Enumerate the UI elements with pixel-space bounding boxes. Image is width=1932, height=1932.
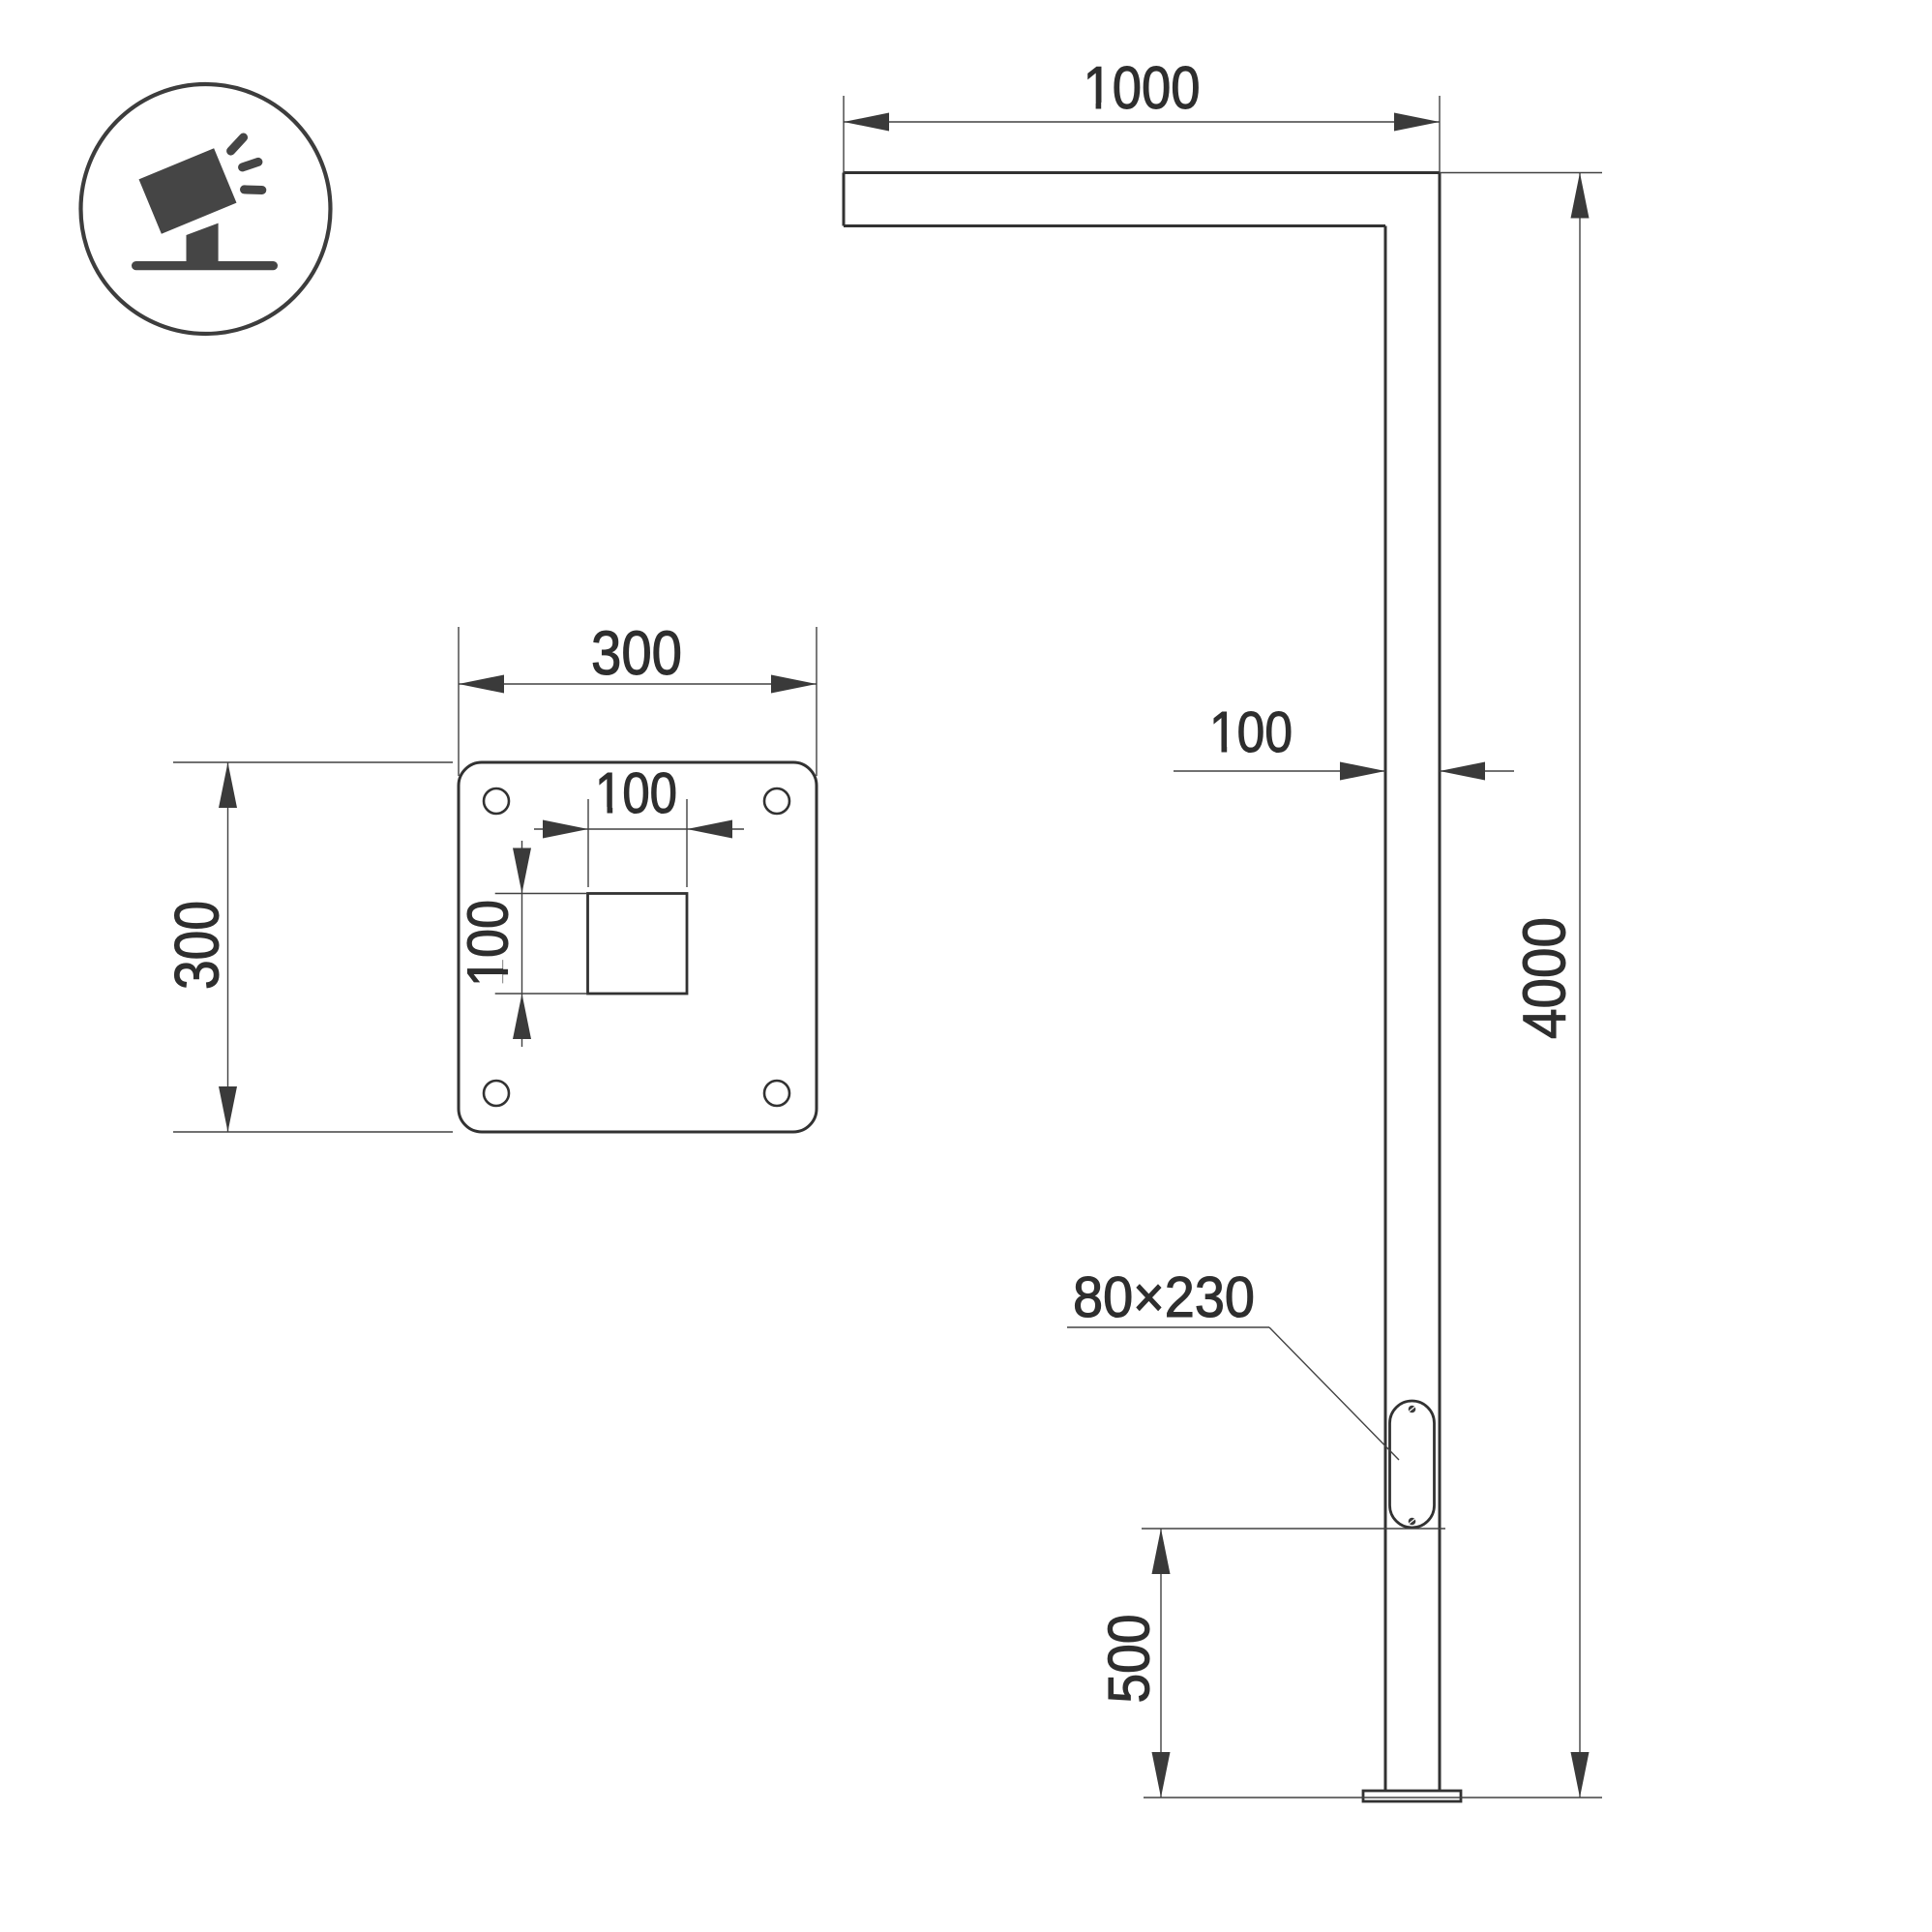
svg-text:1000: 1000 <box>1084 55 1201 122</box>
svg-text:300: 300 <box>162 901 231 990</box>
svg-text:100: 100 <box>595 761 677 825</box>
svg-text:4000: 4000 <box>1512 917 1579 1039</box>
svg-text:100: 100 <box>1209 700 1293 764</box>
svg-text:80×230: 80×230 <box>1073 1265 1255 1329</box>
svg-text:100: 100 <box>457 900 520 987</box>
svg-text:500: 500 <box>1096 1615 1161 1704</box>
svg-text:300: 300 <box>591 618 682 688</box>
